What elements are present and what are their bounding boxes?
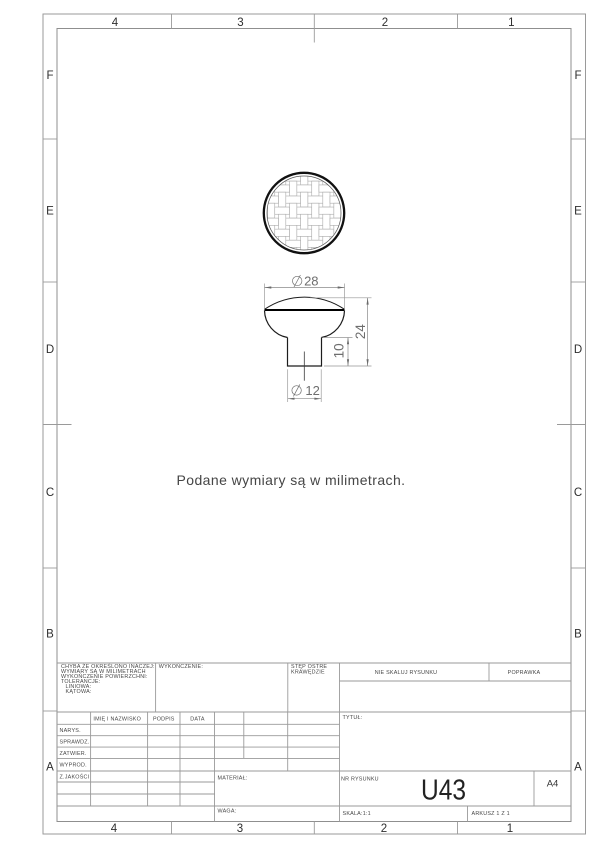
svg-text:TYTUŁ:: TYTUŁ:: [343, 715, 363, 721]
svg-text:1: 1: [507, 823, 513, 835]
svg-text:10: 10: [331, 343, 346, 358]
svg-text:MATERIAŁ:: MATERIAŁ:: [218, 776, 248, 782]
svg-text:4: 4: [111, 823, 118, 835]
svg-text:U43: U43: [421, 775, 466, 807]
svg-text:E: E: [46, 206, 54, 218]
svg-text:2: 2: [382, 17, 388, 29]
svg-text:NIE SKALUJ RYSUNKU: NIE SKALUJ RYSUNKU: [375, 670, 438, 676]
svg-text:3: 3: [237, 823, 243, 835]
svg-text:B: B: [574, 629, 582, 641]
svg-text:4: 4: [112, 17, 119, 29]
svg-text:ARKUSZ 1 Z 1: ARKUSZ 1 Z 1: [472, 811, 510, 817]
svg-text:12: 12: [305, 383, 319, 398]
svg-text:C: C: [46, 487, 54, 499]
svg-text:2: 2: [381, 823, 387, 835]
svg-text:POPRAWKA: POPRAWKA: [508, 670, 541, 676]
svg-text:KĄTOWA:: KĄTOWA:: [66, 689, 92, 695]
svg-text:WYPROD.: WYPROD.: [60, 762, 87, 768]
svg-text:A: A: [46, 761, 54, 773]
svg-text:SPRAWDZ.: SPRAWDZ.: [60, 740, 90, 746]
svg-text:F: F: [574, 70, 581, 82]
svg-text:Z.JAKOŚCI: Z.JAKOŚCI: [60, 772, 90, 780]
svg-text:WAGA:: WAGA:: [218, 809, 237, 815]
svg-text:IMIĘ I NAZWISKO: IMIĘ I NAZWISKO: [93, 717, 141, 723]
svg-text:DATA: DATA: [190, 717, 205, 723]
svg-text:ZATWIER.: ZATWIER.: [60, 751, 87, 757]
svg-text:B: B: [46, 629, 54, 641]
svg-text:KRAWĘDZIE: KRAWĘDZIE: [291, 670, 325, 676]
svg-text:NARYS.: NARYS.: [60, 728, 81, 734]
svg-text:A: A: [574, 761, 582, 773]
svg-text:D: D: [46, 344, 54, 356]
svg-text:A4: A4: [547, 779, 559, 790]
svg-text:3: 3: [237, 17, 243, 29]
svg-text:E: E: [574, 206, 582, 218]
svg-text:D: D: [574, 344, 582, 356]
svg-text:1: 1: [508, 17, 514, 29]
svg-text:F: F: [46, 70, 53, 82]
svg-text:C: C: [574, 487, 582, 499]
svg-text:WYKOŃCZENIE:: WYKOŃCZENIE:: [159, 663, 203, 670]
svg-text:28: 28: [304, 274, 318, 289]
svg-text:SKALA:1:1: SKALA:1:1: [343, 811, 371, 817]
svg-text:PODPIS: PODPIS: [153, 717, 175, 723]
svg-text:24: 24: [353, 324, 368, 340]
svg-text:Podane wymiary są w milimetrac: Podane wymiary są w milimetrach.: [177, 472, 406, 488]
svg-text:NR RYSUNKU: NR RYSUNKU: [341, 777, 379, 783]
